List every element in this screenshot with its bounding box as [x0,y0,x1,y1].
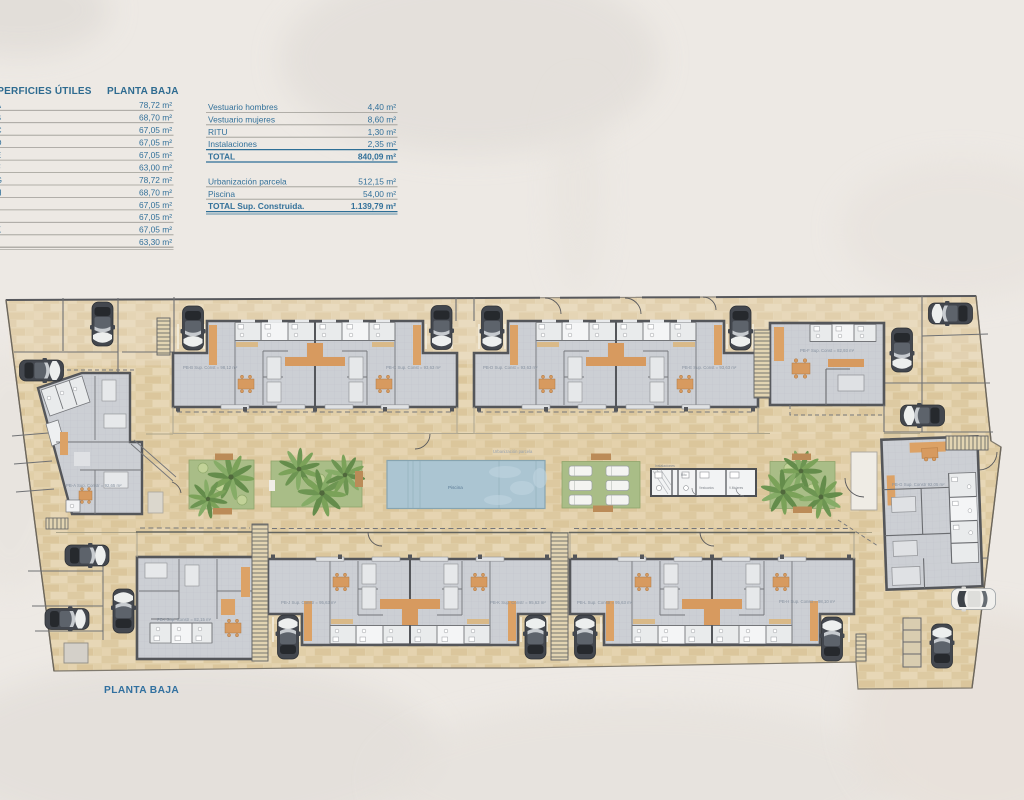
svg-text:PB-B Sup. Const = 98,12 m²: PB-B Sup. Const = 98,12 m² [183,365,238,370]
svg-text:67,05 m²: 67,05 m² [139,138,172,148]
svg-text:PB-J Sup. Constr = 95,63 m²: PB-J Sup. Constr = 95,63 m² [281,600,337,605]
svg-text:67,05 m²: 67,05 m² [139,200,172,210]
svg-text:PB-H Sup. Constr = 98,10 m²: PB-H Sup. Constr = 98,10 m² [779,599,836,604]
svg-text:Vestuario mujeres: Vestuario mujeres [208,114,275,124]
svg-text:Vestuario hombres: Vestuario hombres [208,102,278,112]
svg-text:68,70 m²: 68,70 m² [139,113,172,123]
svg-text:PB-D Sup. Const = 93,63 m²: PB-D Sup. Const = 93,63 m² [483,365,538,370]
svg-text:PB-K Sup. Constr = 95,63 m²: PB-K Sup. Constr = 95,63 m² [490,600,546,605]
svg-text:Urbanización parcela: Urbanización parcela [493,449,533,454]
svg-text:Rito: Rito [681,473,687,477]
svg-text:Instalaciones: Instalaciones [208,139,257,149]
svg-text:PB-C Sup. Const = 93,63 m²: PB-C Sup. Const = 93,63 m² [386,365,441,370]
svg-text:PB-G Sup. Constr 92,05 m²: PB-G Sup. Constr 92,05 m² [892,482,945,487]
svg-text:67,05 m²: 67,05 m² [139,225,172,235]
svg-text:512,15 m²: 512,15 m² [358,176,396,186]
svg-text:54,00 m²: 54,00 m² [363,189,396,199]
svg-text:C: C [0,125,2,135]
svg-text:F: F [0,162,1,172]
svg-text:Vestuarios: Vestuarios [699,486,714,490]
svg-text:PB-L Sup. Constr = 95,63 m²: PB-L Sup. Constr = 95,63 m² [577,600,633,605]
svg-text:PLANTA BAJA: PLANTA BAJA [107,86,179,97]
svg-text:D: D [0,138,2,148]
svg-text:78,72 m²: 78,72 m² [139,100,172,110]
svg-text:PB-A Sup. Constr = 92,65 m²: PB-A Sup. Constr = 92,65 m² [66,483,122,488]
svg-text:67,05 m²: 67,05 m² [139,125,172,135]
svg-text:68,70 m²: 68,70 m² [139,187,172,197]
svg-text:Piscina: Piscina [448,485,463,490]
svg-text:78,72 m²: 78,72 m² [139,175,172,185]
svg-text:1,30 m²: 1,30 m² [368,127,397,137]
svg-text:H: H [0,187,2,197]
svg-text:63,00 m²: 63,00 m² [139,162,172,172]
svg-text:1.139,79 m²: 1.139,79 m² [351,201,396,211]
svg-text:Urbanización parcela: Urbanización parcela [208,176,287,186]
svg-text:PB-F Sup. Const = 82,93 m²: PB-F Sup. Const = 82,93 m² [800,348,855,353]
svg-text:Instalaciones: Instalaciones [655,464,675,468]
svg-text:67,05 m²: 67,05 m² [139,150,172,160]
svg-text:Piscina: Piscina [208,189,235,199]
svg-text:67,05 m²: 67,05 m² [139,212,172,222]
svg-text:SUPERFICIES ÚTILES: SUPERFICIES ÚTILES [0,84,92,97]
svg-text:PB-E Sup. Const = 93,63 m²: PB-E Sup. Const = 93,63 m² [682,365,737,370]
svg-text:PB-I Sup. Constr = 82,15 m²: PB-I Sup. Constr = 82,15 m² [157,617,212,622]
svg-text:G: G [0,175,2,185]
svg-text:63,30 m²: 63,30 m² [139,237,172,247]
svg-text:840,09 m²: 840,09 m² [358,152,396,162]
svg-text:RITU: RITU [208,127,228,137]
svg-text:2,35 m²: 2,35 m² [368,139,397,149]
svg-text:4,40 m²: 4,40 m² [368,102,397,112]
svg-text:V.Mujeres: V.Mujeres [729,486,743,490]
svg-text:8,60 m²: 8,60 m² [368,114,397,124]
svg-text:TOTAL: TOTAL [208,152,235,162]
svg-text:PLANTA BAJA: PLANTA BAJA [104,685,179,696]
svg-text:TOTAL Sup. Construida.: TOTAL Sup. Construida. [208,201,304,211]
